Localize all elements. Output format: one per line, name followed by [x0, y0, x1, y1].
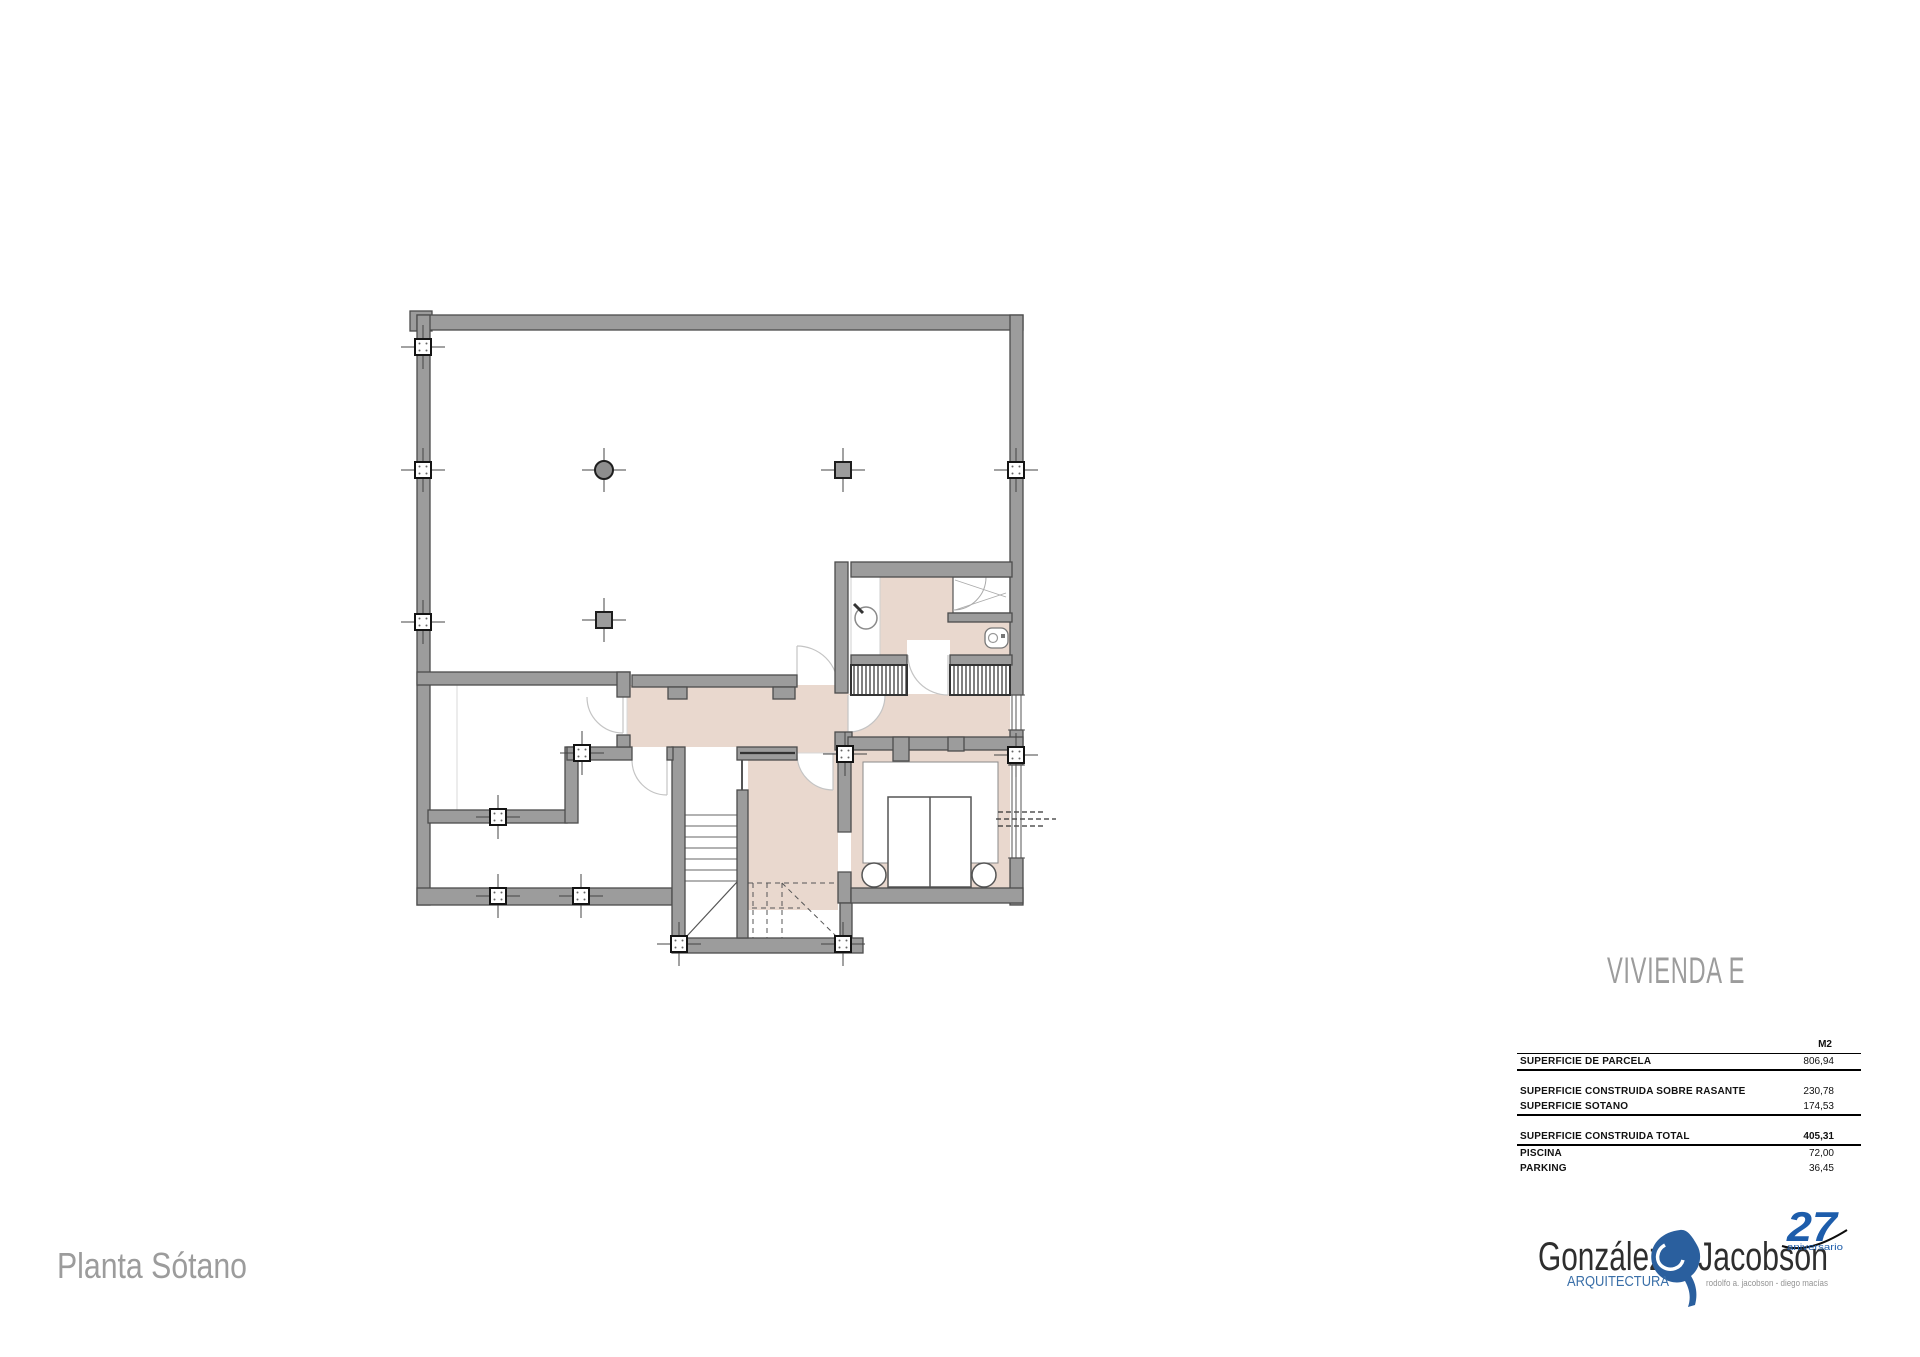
column-marker [476, 874, 520, 918]
nightstand-right [972, 863, 996, 887]
table-row: SUPERFICIE CONSTRUIDA SOBRE RASANTE 230,… [1517, 1084, 1861, 1099]
logo-tagline: ARQUITECTURA [1567, 1273, 1669, 1290]
floor-plan [400, 295, 1070, 985]
table-header-row: M2 [1517, 1036, 1861, 1053]
table-row: PISCINA 72,00 [1517, 1146, 1861, 1161]
unit-header: M2 [1786, 1040, 1832, 1050]
table-row: SUPERFICIE SOTANO 174,53 [1517, 1099, 1861, 1116]
toilet [985, 628, 1008, 648]
table-row: PARKING 36,45 [1517, 1161, 1861, 1176]
shower [953, 577, 1010, 613]
drawing-sheet: VIVIENDA E Planta Sótano M2 SUPERFICIE D… [0, 0, 1920, 1357]
column-marker [401, 325, 445, 369]
column-marker [994, 448, 1038, 492]
area-table: M2 SUPERFICIE DE PARCELA 806,94 SUPERFIC… [1517, 1036, 1861, 1176]
logo-partners: rodolfo a. jacobson - diego macías [1706, 1278, 1828, 1289]
project-title: VIVIENDA E [1607, 950, 1745, 992]
ampersand-leaf-icon [1651, 1230, 1700, 1307]
table-row: SUPERFICIE CONSTRUIDA TOTAL 405,31 [1517, 1129, 1861, 1146]
nightstand-left [862, 863, 886, 887]
column-marker [821, 922, 865, 966]
column-marker [476, 795, 520, 839]
square-column [821, 448, 865, 492]
plan-title: Planta Sótano [57, 1245, 247, 1287]
column-marker [401, 448, 445, 492]
table-row: SUPERFICIE DE PARCELA 806,94 [1517, 1053, 1861, 1071]
room-door-1 [587, 697, 623, 733]
room-door-2 [632, 760, 667, 795]
bathroom-sink [851, 577, 880, 658]
column-marker [401, 600, 445, 644]
square-column [582, 598, 626, 642]
round-column [582, 448, 626, 492]
column-marker [559, 874, 603, 918]
company-logo: González Jacobson ARQUITECTURA rodolfo a… [1530, 1195, 1860, 1310]
anniversary-word: aniversario [1787, 1242, 1843, 1253]
garage-door [797, 646, 838, 687]
